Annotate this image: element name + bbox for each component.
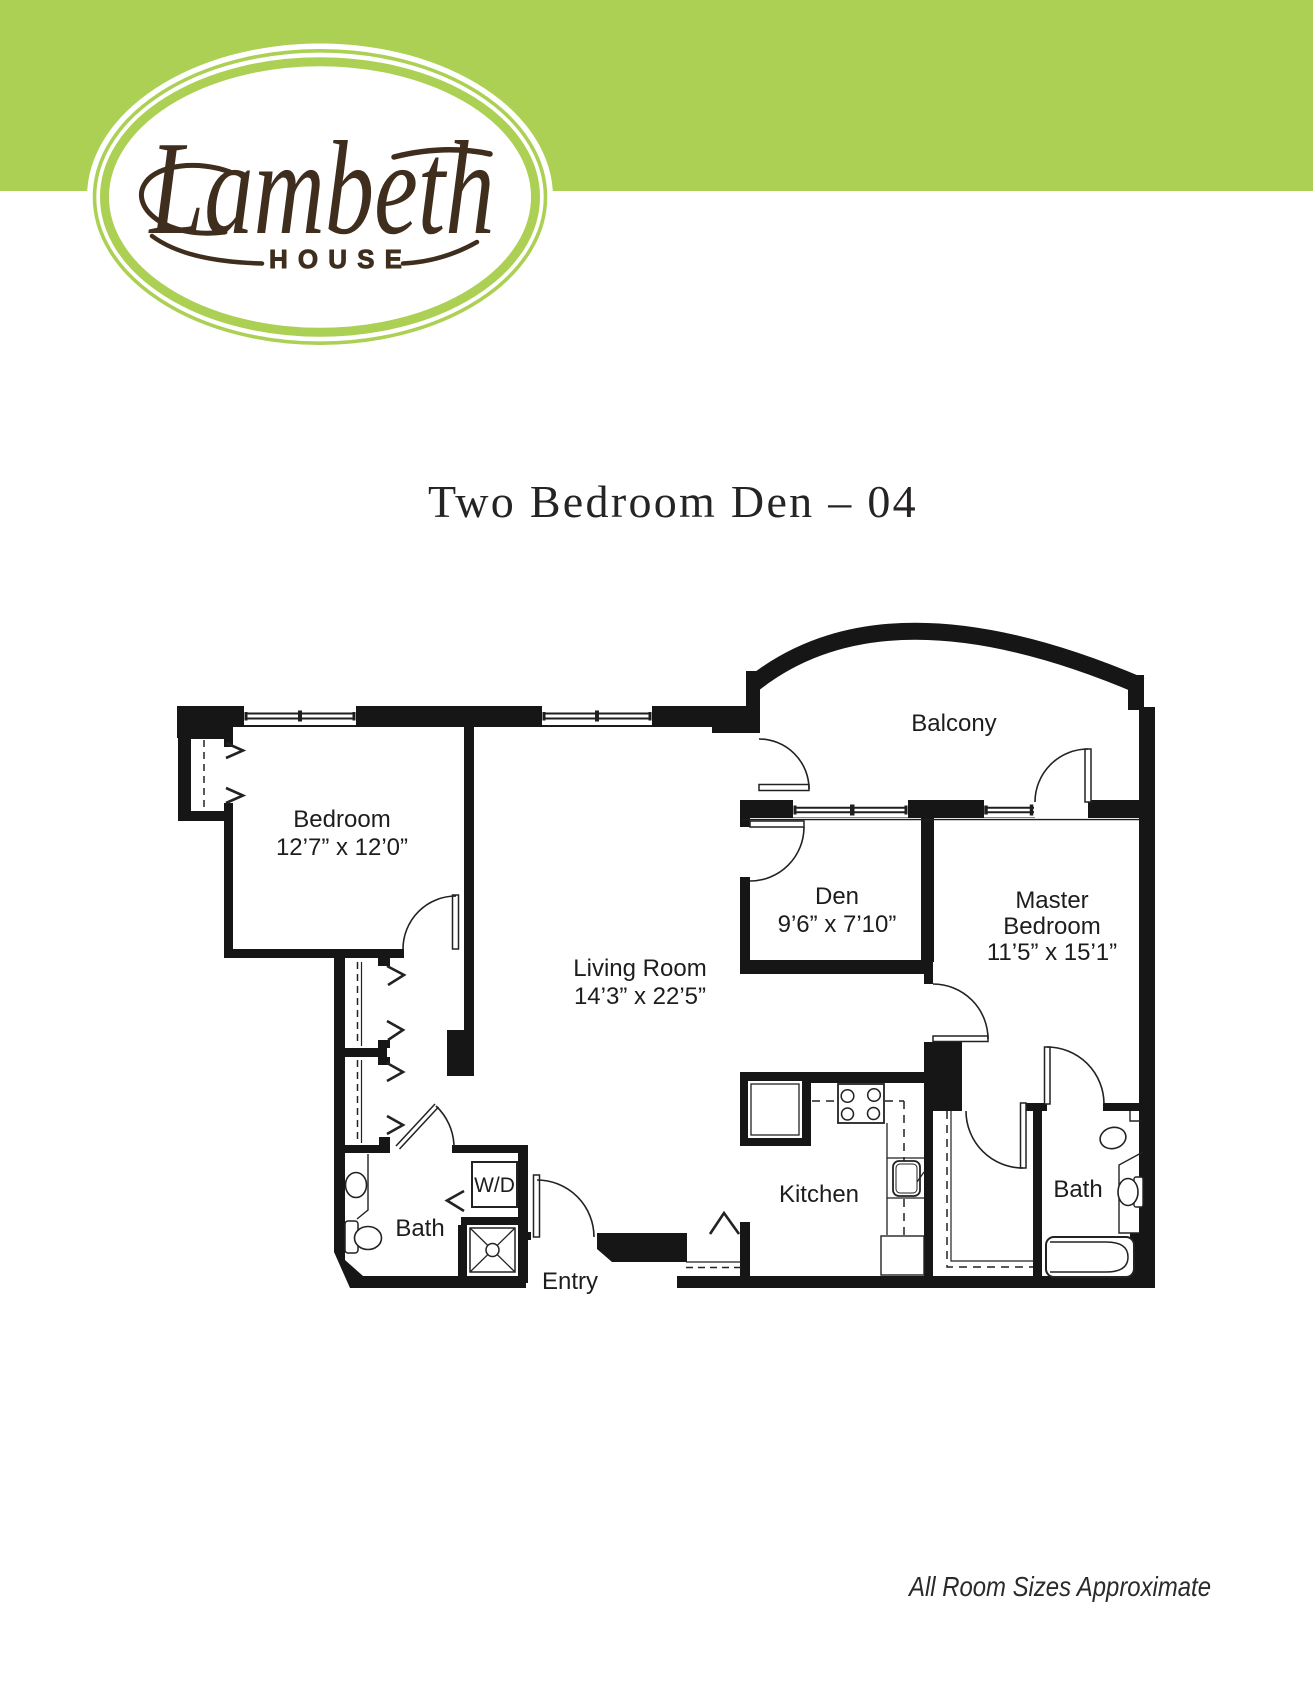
svg-text:12’7” x 12’0”: 12’7” x 12’0”: [276, 834, 408, 861]
svg-text:Entry: Entry: [542, 1268, 598, 1295]
svg-text:11’5” x 15’1”: 11’5” x 15’1”: [987, 939, 1117, 966]
svg-text:Bath: Bath: [1053, 1176, 1102, 1203]
svg-text:Master: Master: [1015, 887, 1088, 914]
svg-text:W/D: W/D: [474, 1174, 515, 1197]
svg-text:Bath: Bath: [395, 1215, 444, 1242]
svg-text:Bedroom: Bedroom: [1003, 913, 1100, 940]
svg-text:Living Room: Living Room: [573, 955, 706, 982]
svg-text:Two Bedroom Den – 04: Two Bedroom Den – 04: [428, 476, 918, 527]
svg-text:All Room Sizes Approximate: All Room Sizes Approximate: [907, 1571, 1211, 1602]
svg-text:Kitchen: Kitchen: [779, 1181, 859, 1208]
svg-text:Lambeth: Lambeth: [148, 114, 494, 262]
svg-text:9’6” x 7’10”: 9’6” x 7’10”: [778, 911, 897, 938]
svg-text:Bedroom: Bedroom: [293, 806, 390, 833]
svg-text:Balcony: Balcony: [911, 710, 996, 737]
svg-text:Den: Den: [815, 883, 859, 910]
svg-text:14’3” x 22’5”: 14’3” x 22’5”: [574, 983, 706, 1010]
